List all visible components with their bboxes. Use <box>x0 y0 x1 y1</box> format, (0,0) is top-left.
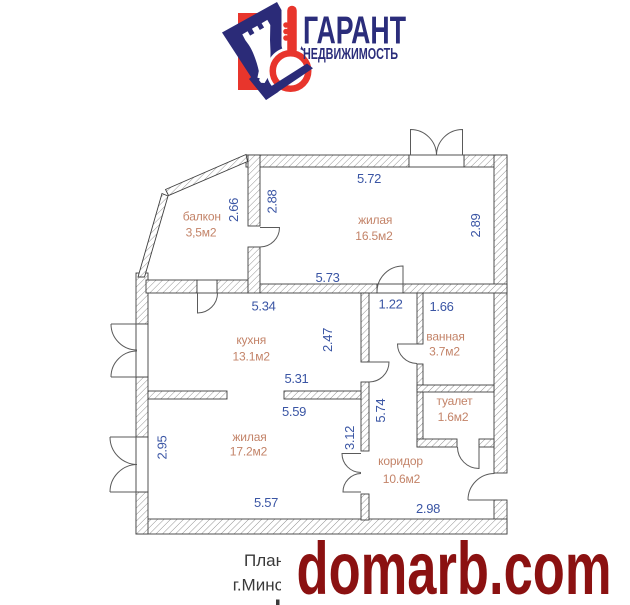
svg-text:1.6м2: 1.6м2 <box>438 410 469 424</box>
svg-text:1.66: 1.66 <box>430 299 454 314</box>
svg-text:5.57: 5.57 <box>254 495 278 510</box>
svg-text:3,5м2: 3,5м2 <box>186 226 217 240</box>
svg-text:2.47: 2.47 <box>320 328 335 352</box>
svg-text:3.12: 3.12 <box>342 426 357 450</box>
svg-text:ванная: ванная <box>426 330 464 344</box>
svg-text:балкон: балкон <box>183 210 221 224</box>
svg-text:НЕДВИЖИМОСТЬ: НЕДВИЖИМОСТЬ <box>303 46 398 63</box>
svg-text:2.66: 2.66 <box>226 198 241 222</box>
svg-text:5.59: 5.59 <box>282 404 306 419</box>
svg-text:коридор: коридор <box>378 454 423 468</box>
svg-text:жилая: жилая <box>232 430 266 444</box>
svg-text:2.95: 2.95 <box>155 436 170 460</box>
svg-text:17.2м2: 17.2м2 <box>230 445 268 459</box>
svg-text:5.73: 5.73 <box>316 270 340 285</box>
svg-text:1.22: 1.22 <box>379 297 403 312</box>
svg-text:10.6м2: 10.6м2 <box>383 472 421 486</box>
svg-text:5.74: 5.74 <box>373 399 388 423</box>
svg-text:2.89: 2.89 <box>468 214 483 238</box>
svg-text:кухня: кухня <box>236 333 266 347</box>
svg-text:туалет: туалет <box>436 394 473 408</box>
svg-text:жилая: жилая <box>358 213 392 227</box>
svg-text:5.31: 5.31 <box>284 371 308 386</box>
svg-text:3.7м2: 3.7м2 <box>429 345 460 359</box>
svg-text:2.88: 2.88 <box>265 190 280 214</box>
svg-text:domarb.com: domarb.com <box>297 527 612 605</box>
svg-text:13.1м2: 13.1м2 <box>233 350 271 364</box>
svg-text:16.5м2: 16.5м2 <box>355 229 393 243</box>
svg-text:2.98: 2.98 <box>416 501 440 516</box>
svg-text:5.72: 5.72 <box>357 171 381 186</box>
svg-text:5.34: 5.34 <box>252 299 276 314</box>
